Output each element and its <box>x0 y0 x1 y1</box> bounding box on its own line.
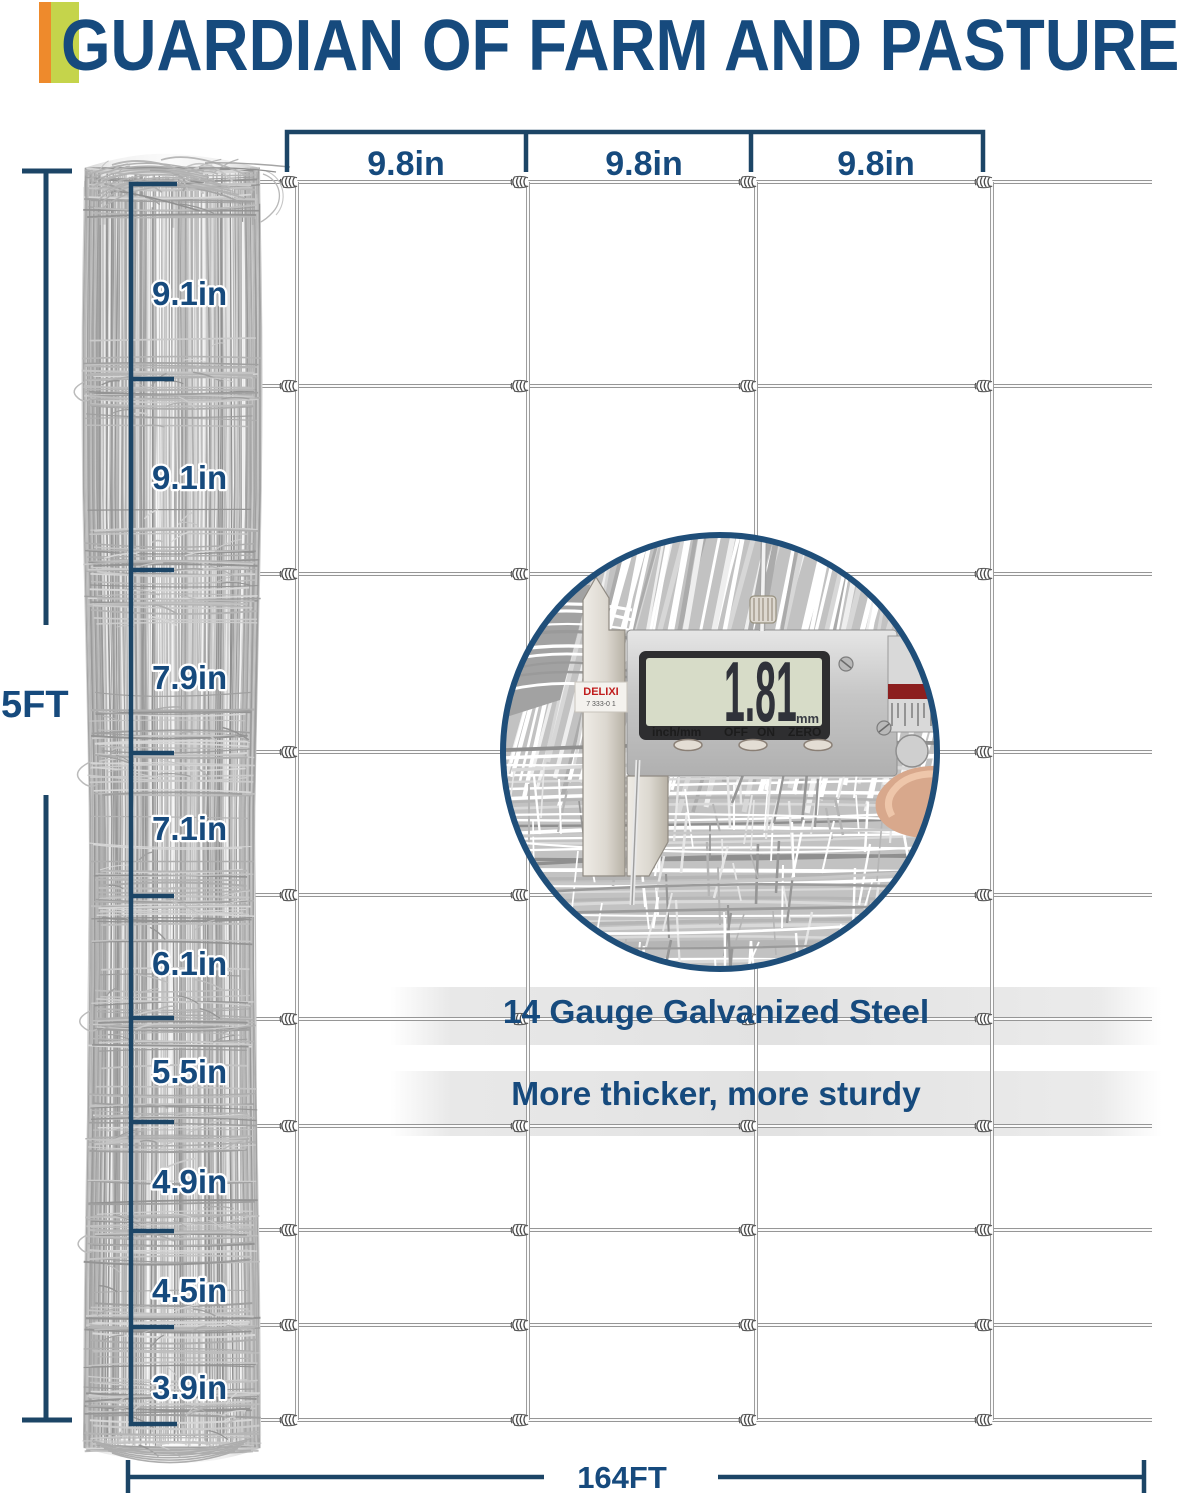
svg-text:9.8in: 9.8in <box>837 145 914 183</box>
svg-text:9.1in: 9.1in <box>152 275 227 312</box>
svg-text:9.8in: 9.8in <box>605 145 682 183</box>
svg-text:ZERO: ZERO <box>788 725 821 739</box>
svg-text:7 333-0 1: 7 333-0 1 <box>586 701 616 708</box>
svg-text:14 Gauge Galvanized Steel: 14 Gauge Galvanized Steel <box>503 994 929 1031</box>
svg-text:7.1in: 7.1in <box>152 810 227 847</box>
svg-text:7.9in: 7.9in <box>152 659 227 696</box>
svg-text:9.1in: 9.1in <box>152 459 227 496</box>
svg-text:164FT: 164FT <box>577 1460 667 1495</box>
svg-text:4.5in: 4.5in <box>152 1272 227 1309</box>
svg-text:6.1in: 6.1in <box>152 945 227 982</box>
svg-text:5.5in: 5.5in <box>152 1053 227 1090</box>
svg-text:9.8in: 9.8in <box>367 145 444 183</box>
svg-text:5FT: 5FT <box>1 684 69 726</box>
svg-text:GUARDIAN OF FARM AND PASTURE: GUARDIAN OF FARM AND PASTURE <box>61 5 1179 85</box>
svg-text:3.9in: 3.9in <box>152 1369 227 1406</box>
svg-text:inch/mm: inch/mm <box>652 725 701 739</box>
svg-text:OFF: OFF <box>724 725 748 739</box>
svg-text:mm: mm <box>796 711 819 726</box>
svg-text:DELIXI: DELIXI <box>583 686 618 698</box>
svg-text:More thicker, more sturdy: More thicker, more sturdy <box>511 1076 921 1113</box>
svg-text:ON: ON <box>757 725 775 739</box>
svg-text:4.9in: 4.9in <box>152 1163 227 1200</box>
